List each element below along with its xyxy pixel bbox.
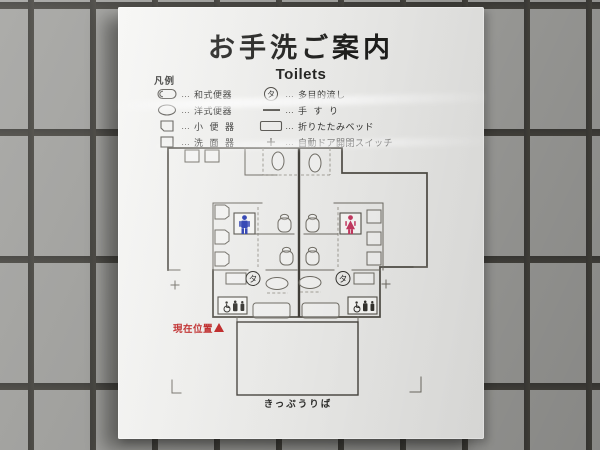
legend-item-handrail: … 手 す り [258,102,393,118]
corner-wall-marks [172,377,421,393]
legend-left-column: … 和式便器 … 洋式便器 … 小 便 器 [154,86,236,150]
legend-item-western-toilet: … 洋式便器 [154,102,236,118]
legend-label: 多目的流し [298,88,346,101]
legend-label: 和式便器 [194,88,232,101]
legend-item-multipurpose-sink: タ … 多目的流し [258,86,393,102]
leader-dots: … [181,105,191,115]
squat-toilet-icon [154,87,180,101]
urinal-fixtures [215,205,229,266]
leader-dots: … [285,105,295,115]
outer-walls [168,148,427,317]
legend-item-urinal: … 小 便 器 [154,118,236,134]
accessibility-sign-left [218,297,247,314]
legend-label: 折りたたみベッド [298,120,374,133]
photo-stage: お手洗ご案内 Toilets 凡例 … 和式便器 … 洋式便器 [0,0,600,450]
leader-dots: … [181,121,191,131]
womens-room-sign [340,213,361,234]
ta-glyph: タ [339,274,348,284]
toilet-guide-sign: お手洗ご案内 Toilets 凡例 … 和式便器 … 洋式便器 [118,7,484,439]
entrance-right [302,303,339,318]
mens-room-sign [234,213,255,234]
leader-dots: … [181,89,191,99]
western-toilet-icon [154,103,180,117]
western-toilet-fixtures-top [272,152,321,172]
ta-circle-left: タ [246,272,260,286]
sign-title: お手洗ご案内 [118,26,484,65]
legend: 凡例 … 和式便器 … 洋式便器 [154,73,454,151]
current-location: 現在位置 [173,323,224,335]
toilet-floor-plan: タ タ [148,142,452,412]
legend-heading: 凡例 [154,73,454,87]
ta-glyph: タ [249,274,258,284]
folding-bed-icon [258,119,284,133]
legend-item-folding-bed: … 折りたたみベッド [258,118,393,134]
legend-label: 手 す り [298,104,340,117]
handrail-icon [258,109,284,111]
ticket-office-label: きっぷうりば [264,398,333,410]
leader-dots: … [285,89,295,99]
current-location-label: 現在位置 [173,323,213,335]
multipurpose-sink-icon: タ [258,87,284,101]
womens-side-fixtures [367,210,381,265]
ticket-office-outline [237,322,358,395]
current-location-marker-icon [214,323,224,332]
circled-ta-glyph: タ [264,87,278,101]
legend-item-japanese-toilet: … 和式便器 [154,86,236,102]
accessibility-sign-right [348,297,377,314]
stall-partitions [256,148,338,267]
wash-basin-fixtures-top [185,150,219,162]
legend-label: 小 便 器 [194,120,236,133]
legend-label: 洋式便器 [194,104,232,117]
leader-dots: … [285,121,295,131]
legend-right-column: タ … 多目的流し … 手 す り … 折りたたみベッド [258,86,393,150]
urinal-icon [154,119,180,133]
ta-circle-right: タ [336,272,350,286]
entrance-left [253,303,290,318]
